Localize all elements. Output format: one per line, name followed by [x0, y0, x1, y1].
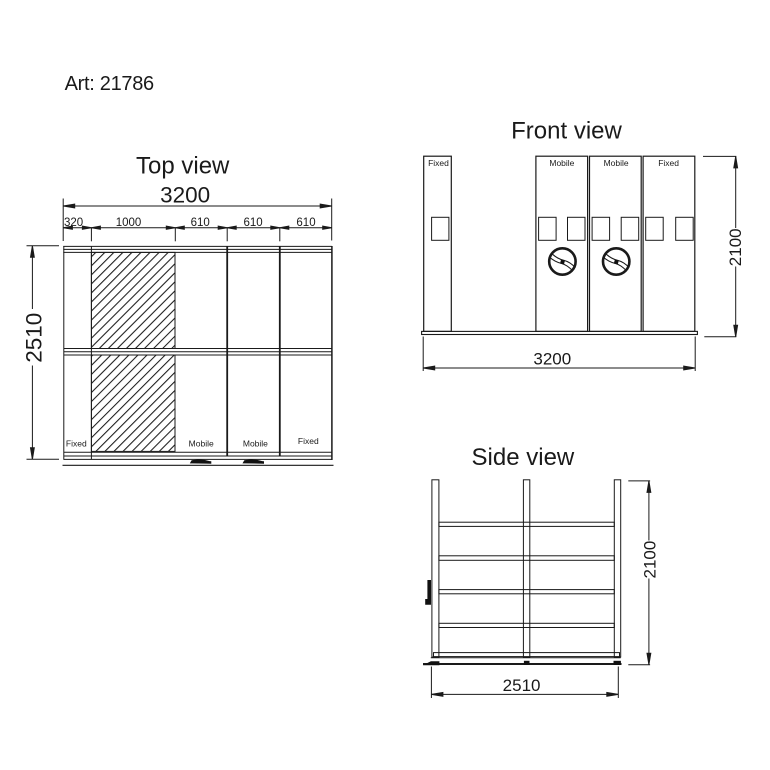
svg-text:2510: 2510: [22, 313, 47, 363]
svg-text:2510: 2510: [503, 676, 541, 695]
svg-text:2100: 2100: [641, 541, 660, 579]
svg-text:Fixed: Fixed: [66, 438, 87, 448]
svg-text:3200: 3200: [160, 183, 210, 208]
svg-text:Mobile: Mobile: [243, 438, 268, 448]
svg-text:Mobile: Mobile: [549, 158, 574, 168]
svg-text:Front view: Front view: [511, 117, 622, 144]
svg-text:1000: 1000: [116, 217, 142, 229]
svg-text:320: 320: [64, 217, 83, 229]
svg-text:Fixed: Fixed: [298, 436, 319, 446]
svg-text:Fixed: Fixed: [428, 158, 449, 168]
svg-text:Side view: Side view: [472, 444, 575, 471]
svg-text:610: 610: [244, 217, 263, 229]
svg-text:Fixed: Fixed: [658, 158, 679, 168]
svg-text:2100: 2100: [726, 228, 745, 266]
svg-text:Mobile: Mobile: [189, 438, 214, 448]
svg-text:610: 610: [296, 217, 315, 229]
svg-text:Art: 21786: Art: 21786: [65, 73, 154, 95]
svg-text:Mobile: Mobile: [604, 158, 629, 168]
svg-text:3200: 3200: [533, 350, 571, 369]
svg-text:610: 610: [191, 217, 210, 229]
svg-text:Top view: Top view: [136, 153, 230, 180]
